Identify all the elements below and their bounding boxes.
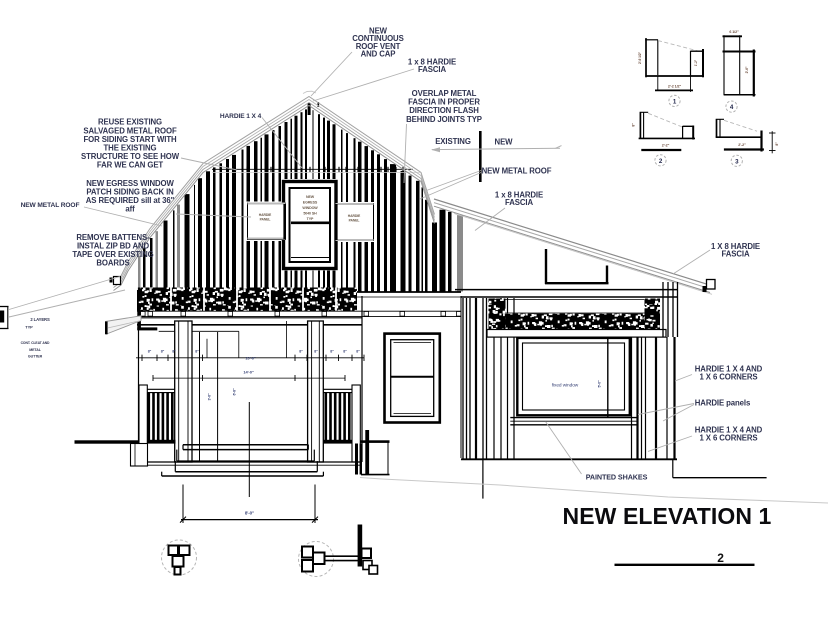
svg-text:BEHIND JOINTS TYP: BEHIND JOINTS TYP bbox=[406, 115, 482, 124]
svg-text:AND CAP: AND CAP bbox=[361, 50, 396, 59]
svg-text:2 LAYERS: 2 LAYERS bbox=[30, 317, 50, 322]
svg-text:REUSE EXISTING: REUSE EXISTING bbox=[98, 118, 162, 127]
svg-text:FASCIA: FASCIA bbox=[722, 250, 750, 259]
svg-text:6 1/2": 6 1/2" bbox=[729, 30, 739, 34]
svg-text:FASCIA: FASCIA bbox=[418, 65, 446, 74]
svg-text:HARDIE 1 X 4: HARDIE 1 X 4 bbox=[220, 113, 262, 120]
svg-text:PAINTED SHAKES: PAINTED SHAKES bbox=[586, 473, 648, 482]
svg-text:TYP: TYP bbox=[307, 217, 314, 221]
svg-text:8": 8" bbox=[632, 123, 636, 127]
svg-text:NEW ELEVATION 1: NEW ELEVATION 1 bbox=[563, 503, 772, 529]
svg-text:2'-2": 2'-2" bbox=[662, 144, 670, 148]
svg-text:1 X 6 CORNERS: 1 X 6 CORNERS bbox=[699, 372, 757, 381]
svg-text:PANEL: PANEL bbox=[260, 218, 271, 222]
svg-text:NEW: NEW bbox=[306, 195, 315, 199]
svg-text:HARDIE: HARDIE bbox=[259, 213, 272, 217]
svg-text:2: 2 bbox=[717, 551, 724, 565]
svg-text:CONT. CLEAT AND: CONT. CLEAT AND bbox=[21, 341, 50, 345]
svg-text:GUTTER: GUTTER bbox=[28, 355, 43, 359]
svg-text:NEW METAL ROOF: NEW METAL ROOF bbox=[21, 202, 80, 209]
svg-text:HARDIE panels: HARDIE panels bbox=[695, 399, 751, 408]
svg-text:8": 8" bbox=[195, 350, 199, 354]
svg-text:8": 8" bbox=[775, 142, 779, 146]
svg-text:8": 8" bbox=[314, 350, 318, 354]
svg-text:8'-0": 8'-0" bbox=[245, 511, 254, 516]
svg-text:5'-0": 5'-0" bbox=[598, 380, 602, 387]
svg-text:8": 8" bbox=[343, 350, 347, 354]
svg-text:EXISTING: EXISTING bbox=[435, 137, 471, 146]
svg-text:DIRECTION FLASH: DIRECTION FLASH bbox=[409, 106, 479, 115]
svg-text:METAL: METAL bbox=[29, 348, 42, 352]
svg-text:2'-2 1/2": 2'-2 1/2" bbox=[668, 84, 682, 88]
svg-text:1'-2": 1'-2" bbox=[694, 59, 698, 66]
svg-text:NEW METAL ROOF: NEW METAL ROOF bbox=[482, 167, 552, 176]
svg-text:2'-2": 2'-2" bbox=[738, 143, 746, 147]
svg-text:FAR WE CAN GET: FAR WE CAN GET bbox=[97, 160, 164, 169]
svg-text:2'-6 1/2": 2'-6 1/2" bbox=[638, 51, 642, 64]
svg-text:8": 8" bbox=[172, 350, 176, 354]
svg-text:10'-0": 10'-0" bbox=[245, 355, 255, 360]
svg-text:1 X 6 CORNERS: 1 X 6 CORNERS bbox=[699, 433, 757, 442]
svg-text:aff: aff bbox=[125, 204, 135, 213]
svg-text:6'-8": 6'-8" bbox=[233, 388, 237, 395]
svg-text:8": 8" bbox=[299, 350, 303, 354]
svg-text:8": 8" bbox=[330, 350, 334, 354]
svg-text:8": 8" bbox=[356, 350, 360, 354]
svg-text:WINDOW: WINDOW bbox=[302, 206, 318, 210]
svg-text:fixed window: fixed window bbox=[552, 383, 579, 389]
svg-text:14'-0": 14'-0" bbox=[243, 370, 253, 375]
svg-text:EGRESS: EGRESS bbox=[303, 201, 318, 205]
svg-text:HARDIE: HARDIE bbox=[348, 214, 361, 218]
svg-text:FASCIA: FASCIA bbox=[505, 198, 533, 207]
svg-text:TYP: TYP bbox=[25, 325, 33, 330]
svg-text:3'-6": 3'-6" bbox=[208, 393, 212, 400]
svg-text:NEW: NEW bbox=[495, 138, 514, 147]
svg-text:5040 SH: 5040 SH bbox=[303, 212, 317, 216]
svg-text:BOARDS: BOARDS bbox=[96, 258, 129, 267]
svg-text:2'-6": 2'-6" bbox=[745, 66, 749, 73]
svg-text:8": 8" bbox=[161, 350, 165, 354]
svg-text:8": 8" bbox=[148, 350, 152, 354]
svg-text:PANEL: PANEL bbox=[349, 219, 360, 223]
